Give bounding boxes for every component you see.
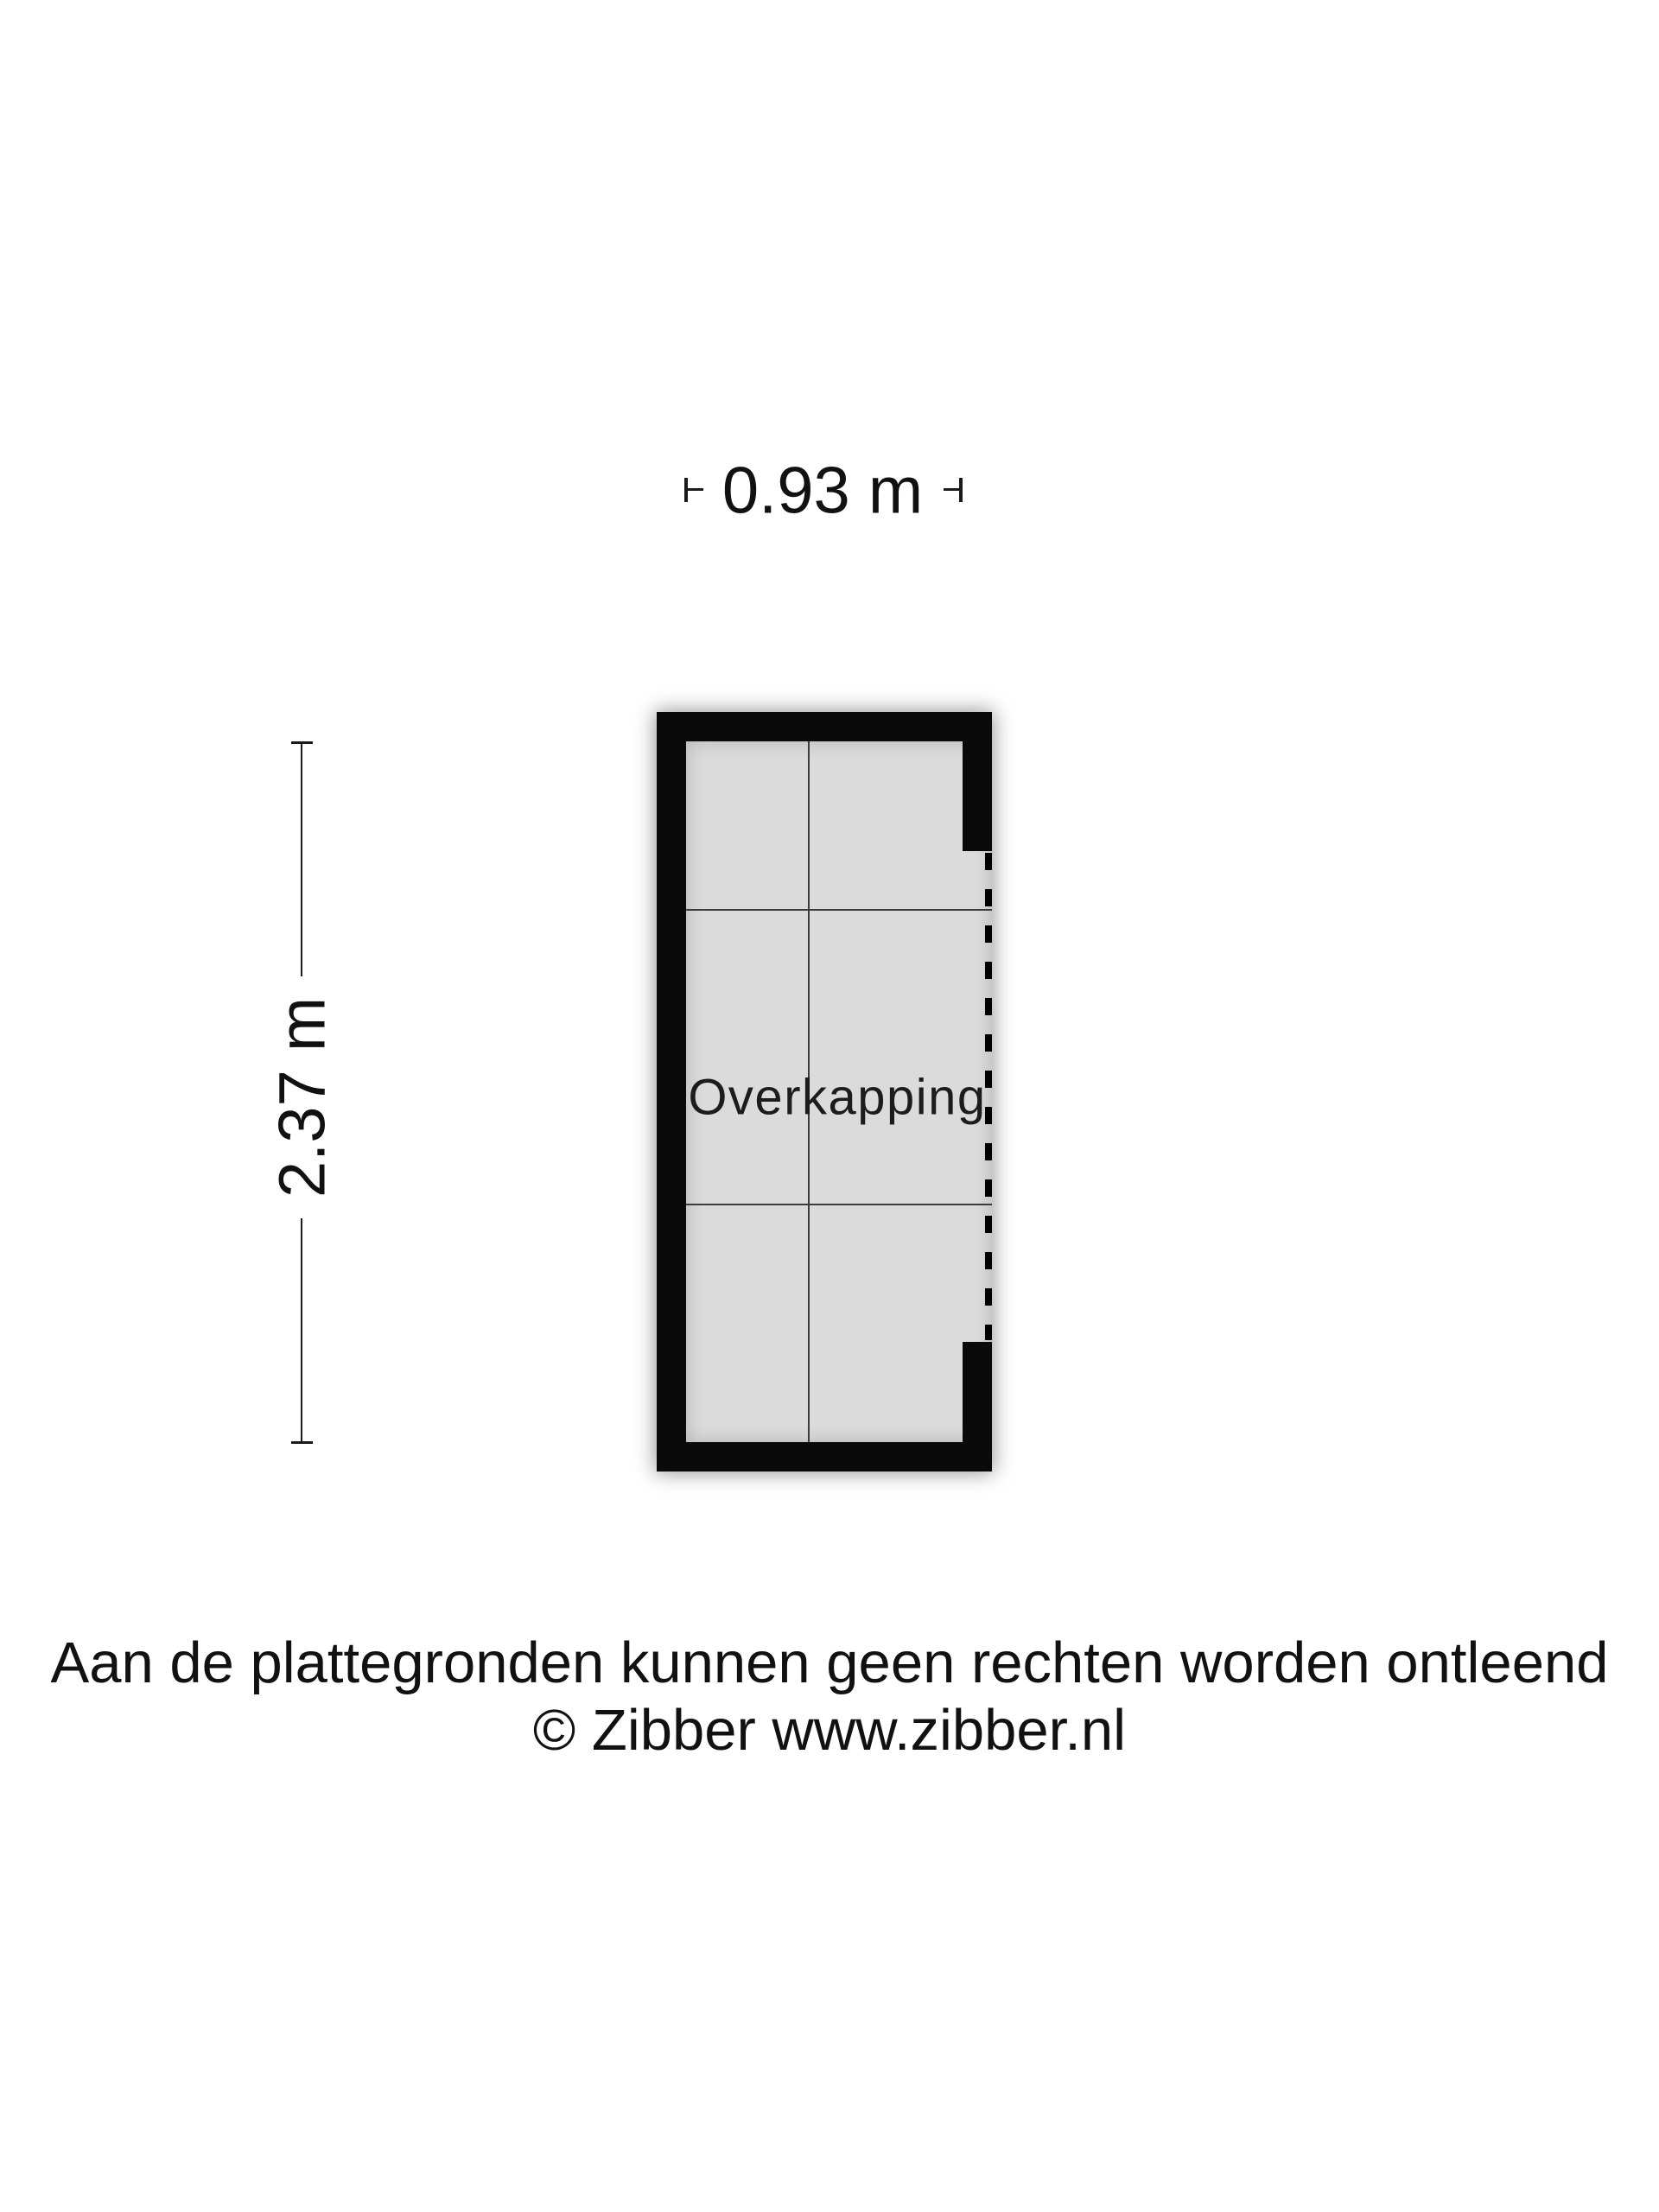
width-dimension-tick-left-stroke-icon (688, 488, 703, 491)
width-dimension-tick-right-stroke-icon (944, 488, 959, 491)
wall-bottom (657, 1442, 992, 1471)
height-dimension-line-top (301, 742, 302, 976)
disclaimer-text: Aan de plattegronden kunnen geen rechten… (0, 1630, 1659, 1697)
wall-top (657, 712, 992, 741)
floorplan-page: 0.93 m 2.37 m Overkapping Aan de platteg… (0, 0, 1659, 2212)
floor-plan: Overkapping (657, 712, 992, 1471)
grid-line-horizontal-1 (686, 909, 992, 911)
height-dimension-cap-bottom-icon (291, 1441, 313, 1444)
footer-disclaimer: Aan de plattegronden kunnen geen rechten… (0, 1630, 1659, 1764)
grid-line-horizontal-2 (686, 1204, 992, 1205)
height-dimension-line-bottom (301, 1218, 302, 1443)
wall-stub-bottom-right (963, 1342, 992, 1471)
width-dimension-tick-right-icon (959, 478, 963, 502)
width-dimension-label: 0.93 m (722, 454, 923, 529)
copyright-text: © Zibber www.zibber.nl (0, 1697, 1659, 1764)
height-dimension-label: 2.37 m (265, 997, 340, 1198)
room-label: Overkapping (688, 1069, 986, 1127)
wall-stub-top-right (963, 712, 992, 851)
wall-left (657, 712, 686, 1471)
